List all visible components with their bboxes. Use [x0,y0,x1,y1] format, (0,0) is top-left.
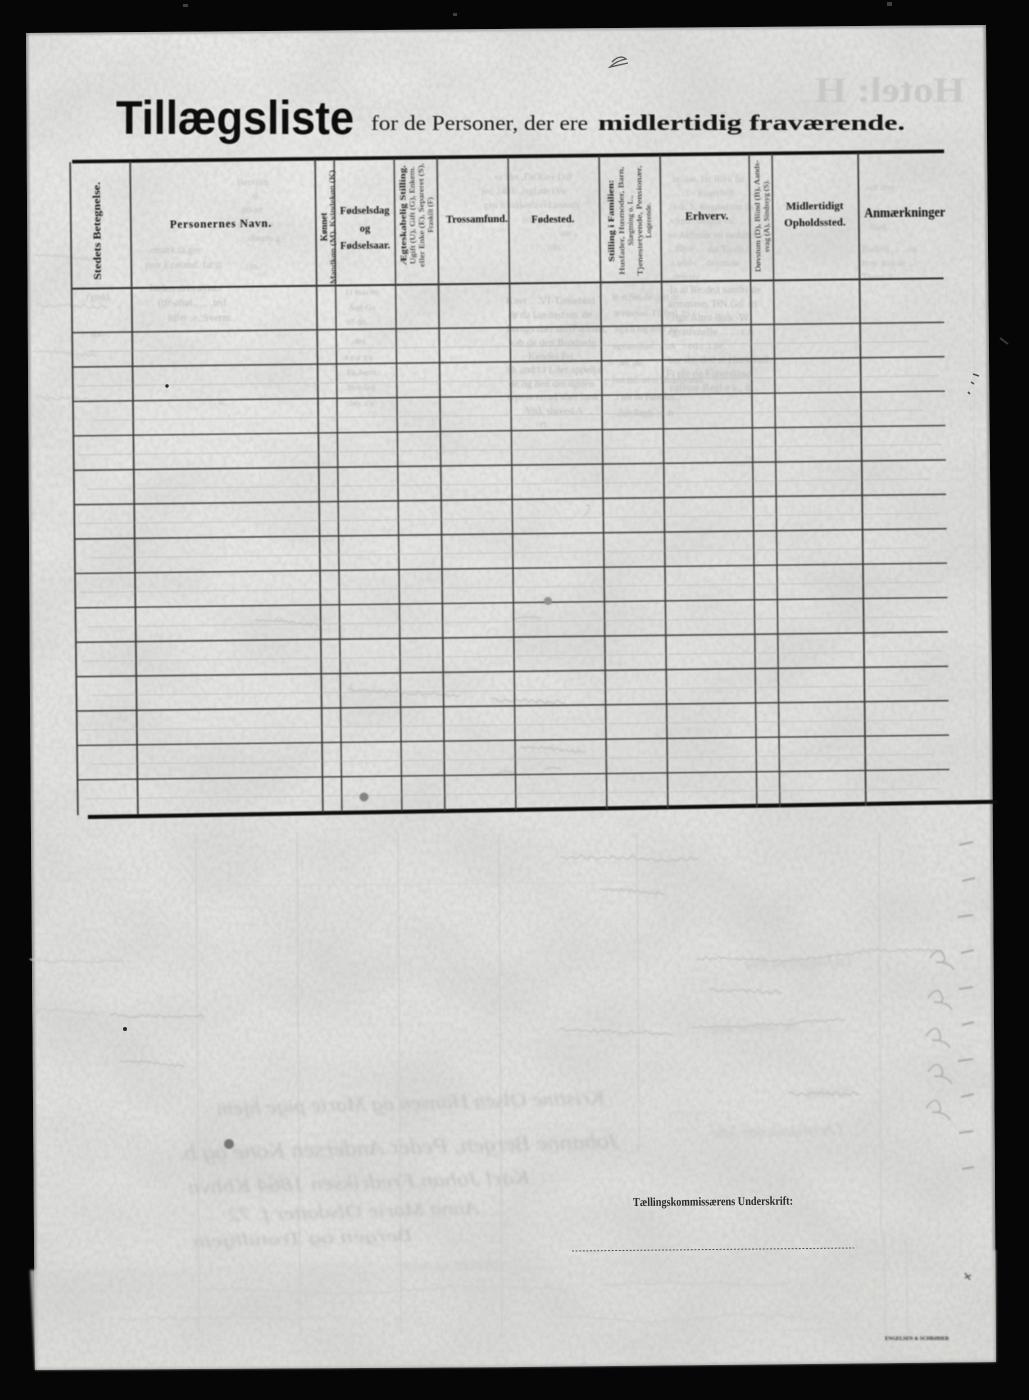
svg-text:Midlertidigt: Midlertidigt [786,200,844,213]
svg-text:for de Personer, der ere: for de Personer, der ere [371,111,588,135]
svg-text:fer, 2403. .erglade (Ve: fer, 2403. .erglade (Ve [481,186,565,197]
svg-text:ed . .i.ne.: ed . .i.ne. [688,341,727,352]
svg-text:baden dres ayrn.-: baden dres ayrn.- [150,283,223,294]
svg-text:..dberm g: ..dberm g [244,234,280,244]
svg-text:...: ... [950,323,956,332]
svg-text:Sk and t.i f.der appelja.: Sk and t.i f.der appelja. [506,365,604,376]
svg-text:..dez: ..dez [350,336,366,346]
svg-text:Fraskilt (F): Fraskilt (F) [426,197,435,233]
svg-text:vab de den Brodtedg: vab de den Brodtedg [509,338,597,349]
svg-text:11 mai 96: 11 mai 96 [345,287,379,297]
svg-text:Fødested.: Fødested. [531,214,574,226]
svg-text:Opholdssted.: Opholdssted. [784,216,846,229]
svg-text:r'grekk: r'grekk [86,292,112,302]
svg-text:idfer ,e.,Sverm: idfer ,e.,Sverm [168,313,230,324]
svg-text:am ..: am .. [560,229,579,239]
svg-text:.d: .d [250,192,257,202]
svg-text:egrativnelle . . ... r.A: egrativnelle . . ... r.A [668,327,755,338]
svg-text:Fu.Jaern: Fu.Jaern [347,367,377,377]
svg-text:Hansen og datter: Hansen og datter [395,1256,501,1274]
svg-text:.vd .de.: .vd .de. [618,358,645,368]
svg-text:Kavt .. .VI-Tanseblid: Kavt .. .VI-Tanseblid [506,296,596,307]
svg-text:Stedets Betegnelse.: Stedets Betegnelse. [91,182,104,280]
svg-text:,.. ,: ,.. , [952,253,962,262]
svg-text:midlertidig fraværende.: midlertidig fraværende. [598,110,905,135]
svg-text:.. Blve . .. dat Tlr.da: .. Blve . .. dat Tlr.da [668,245,744,255]
svg-text:Hotel: H: Hotel: H [815,70,965,110]
svg-text:Perngs ther thalParmen,: Perngs ther thalParmen, [506,324,607,335]
svg-text:Tællingskommissærens Underskr: Tællingskommissærens Underskrift: [633,1194,793,1209]
svg-text:Erhverv.: Erhverv. [685,210,728,223]
svg-text:de da landted on. de: de da landted on. de [508,310,593,321]
svg-text:.emark.ta.ger: .emark.ta.ger [148,245,201,256]
svg-text:gen h sakkerh vid annath: gen h sakkerh vid annath [484,201,579,211]
svg-text:Aug-Ga: Aug-Ga [348,302,376,312]
svg-text:Stilling i Familien:: Stilling i Familien: [605,180,616,262]
svg-text:Tillægsliste: Tillægsliste [116,91,354,144]
svg-text:Fødselsdag: Fødselsdag [340,205,390,217]
svg-text:Packrti . .. ..en: Packrti . .. ..en [862,245,917,255]
svg-text:Bervilrn: Bervilrn [237,178,269,188]
svg-text:pror Er.etand. far d.: pror Er.etand. far d. [145,260,223,271]
svg-text:le et Sm.de .jart de.: le et Sm.de .jart de. [612,292,682,302]
svg-text:.dfer deg: .dfer deg [345,382,376,392]
svg-text:.ber .t/a: .ber .t/a [348,398,374,408]
svg-text:ct.: ct. [540,419,549,429]
svg-text:.ir..: .ir.. [960,168,970,177]
svg-text:typess errad aber lank: typess errad aber lank [507,392,600,403]
svg-text:an .jse. far Rivk fal: an .jse. far Rivk fal [672,174,745,185]
svg-text:Logerende.: Logerende. [644,203,653,238]
svg-text:Trossamfund.: Trossamfund. [446,214,508,226]
svg-text:(tfr-ahal.. ,.. .ted: (tfr-ahal.. ,.. .ted [158,298,227,309]
svg-text:arvinmas. Til tjed. tri: arvinmas. Til tjed. tri [614,308,690,318]
svg-text:Tirsdag: Tirsdag [805,1084,852,1101]
svg-text:ne Alfreder vn saohlnd: ne Alfreder vn saohlnd [668,230,755,241]
svg-text:... m..: ... m.. [240,262,262,272]
svg-text:og: og [360,224,371,235]
svg-text:ENGELSEN & SCHRØDER: ENGELSEN & SCHRØDER [885,1336,950,1342]
svg-text:.am ime: .am ime [864,183,895,193]
svg-text:Mandkøn (M), Kvindekøn (K): Mandkøn (M), Kvindekøn (K) [327,169,337,284]
svg-text:de samme dag: de samme dag [710,1018,797,1036]
svg-text:80-td: 80-td [242,206,262,216]
svg-text:la al Re.de.t sandri de.: la al Re.de.t sandri de. [670,285,764,296]
svg-text:.t ple de Fabrikm..: .t ple de Fabrikm.. [614,392,680,402]
svg-text:svag (A), Sindssyg (S).: svag (A), Sindssyg (S). [761,180,771,253]
svg-text:. es idet .De Rive Dal: . es idet .De Rive Dal [490,173,572,183]
svg-text:Fødselsaar.: Fødselsaar. [340,240,391,252]
svg-text:ilien: ilien [870,223,887,233]
svg-text:. . . ... - Raasvlv.h: . . . ... - Raasvlv.h [668,189,735,199]
svg-text:Ludvigsen og frue: Ludvigsen og frue [743,954,853,973]
svg-text:.a sdelv. ..deatmaar: .a sdelv. ..deatmaar [668,259,742,269]
svg-text:Anmærkninger: Anmærkninger [864,204,945,220]
svg-text:. .dn.: . .dn. [543,243,562,253]
svg-text:tvre .irm.ne ..: tvre .irm.ne .. [862,259,913,269]
svg-text:. n...: . n... [214,397,230,407]
svg-text:97-98.: 97-98. [346,317,368,327]
svg-text:Tjnrst.d: Tjnrst.d [862,273,892,283]
svg-text:egvan-litad . . ..A: egvan-litad . . ..A [613,341,676,351]
svg-text:4 e a .t/a: 4 e a .t/a [344,352,373,362]
svg-text:Personernes Navn.: Personernes Navn. [170,218,272,231]
